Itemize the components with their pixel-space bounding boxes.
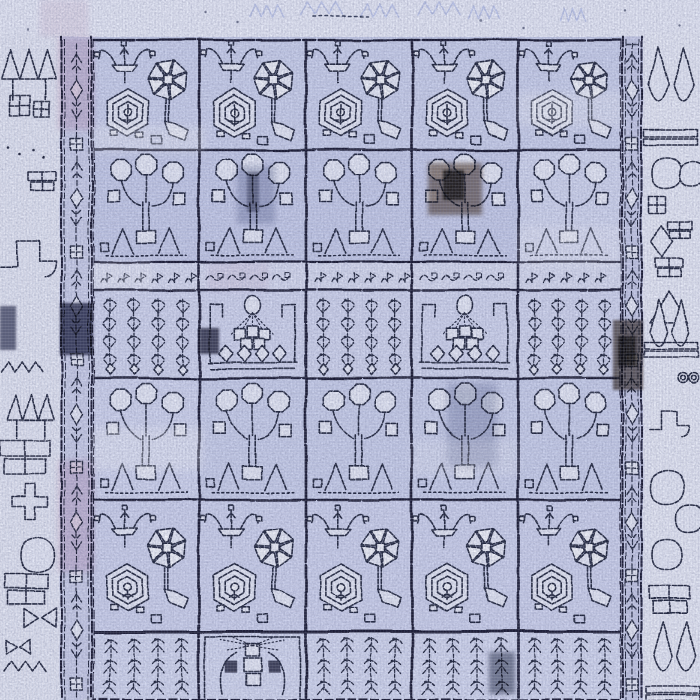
rug-photo (0, 0, 700, 700)
grain-noise-overlay (0, 0, 700, 700)
screenshot-root: Worn blue and ivory Persian Bakhtiari-st… (0, 0, 700, 700)
texture-overlay (0, 0, 700, 700)
